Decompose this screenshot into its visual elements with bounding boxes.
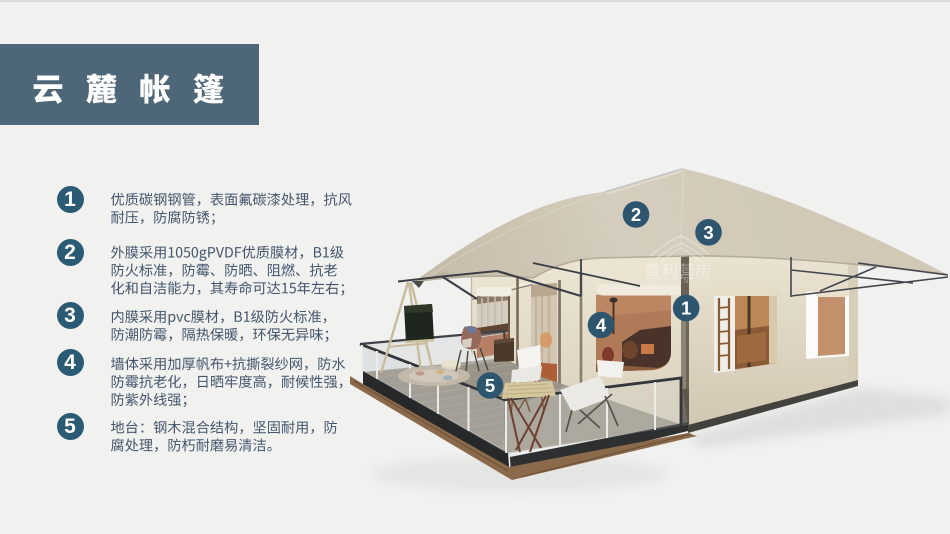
- svg-text:4: 4: [596, 315, 607, 336]
- svg-text:2: 2: [631, 204, 641, 225]
- svg-text:5: 5: [485, 375, 495, 396]
- svg-text:1: 1: [681, 298, 691, 319]
- svg-text:3: 3: [703, 222, 713, 243]
